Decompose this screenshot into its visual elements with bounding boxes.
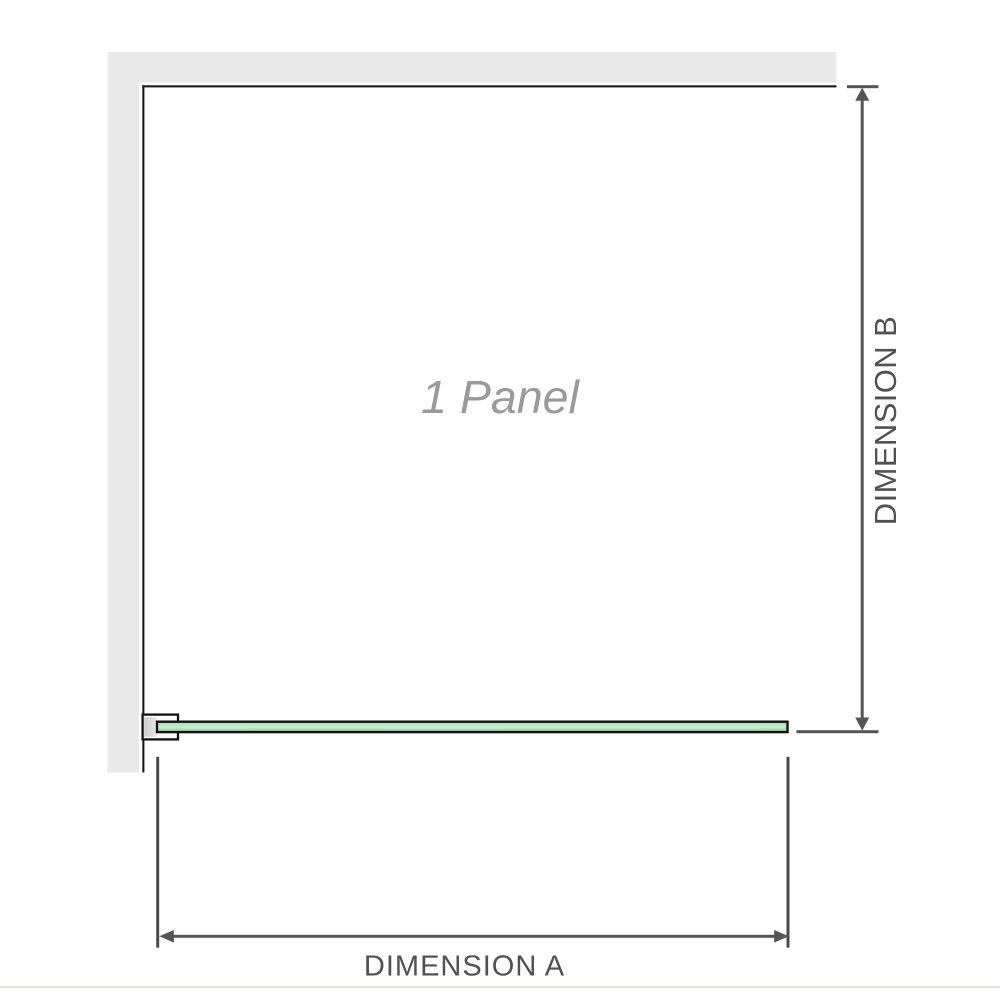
svg-text:1 Panel: 1 Panel <box>421 371 580 423</box>
svg-text:DIMENSION B: DIMENSION B <box>868 316 903 525</box>
svg-text:DIMENSION A: DIMENSION A <box>364 951 565 983</box>
